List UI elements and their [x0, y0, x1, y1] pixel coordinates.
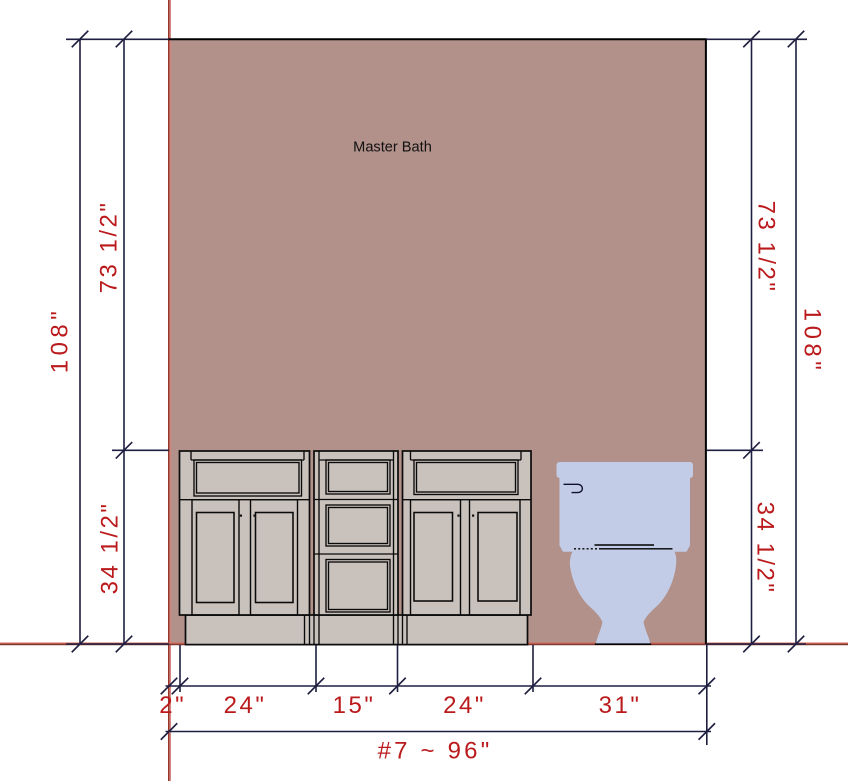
svg-text:34 1/2": 34 1/2": [97, 502, 124, 595]
svg-text:73 1/2": 73 1/2": [753, 201, 780, 294]
svg-text:2": 2": [159, 692, 186, 719]
svg-text:15": 15": [333, 692, 376, 719]
svg-text:73 1/2": 73 1/2": [96, 201, 123, 294]
svg-text:24": 24": [443, 692, 486, 719]
svg-text:34 1/2": 34 1/2": [752, 502, 779, 595]
svg-text:108": 108": [47, 307, 74, 374]
svg-text:#7 ~ 96": #7 ~ 96": [378, 738, 493, 765]
svg-text:24": 24": [224, 692, 267, 719]
svg-text:Master Bath: Master Bath: [353, 140, 432, 156]
svg-text:108": 108": [799, 308, 826, 375]
svg-text:31": 31": [599, 692, 642, 719]
